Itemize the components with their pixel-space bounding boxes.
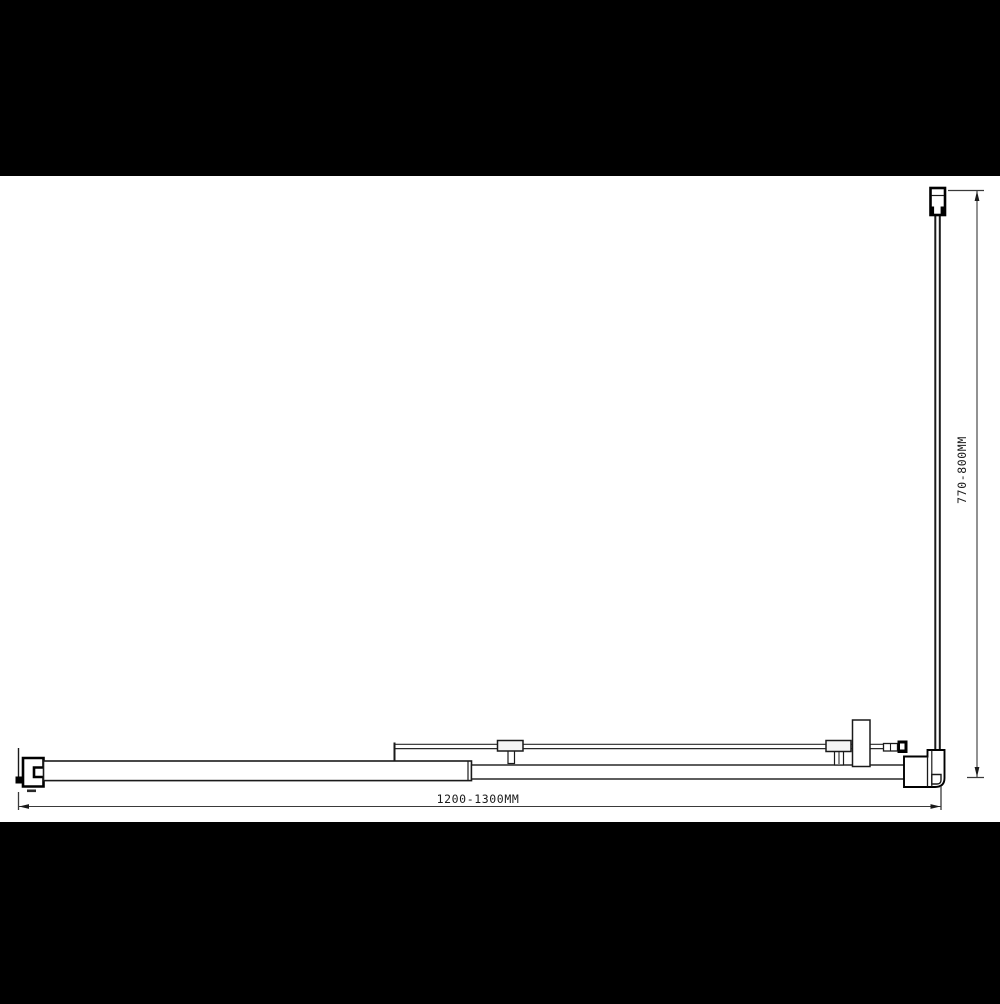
support-bracket [853,720,871,767]
clamp-head [826,741,851,752]
drawing-canvas [0,176,1000,822]
width-dimension-label: 1200-1300MM [437,792,520,806]
corner-connector-block [904,750,945,787]
corner-mount-slot [900,744,905,750]
height-dimension-label: 770-800MM [955,436,969,504]
clamp-stem [508,751,515,764]
glass-edge-line [934,214,936,753]
clamp-head [498,741,524,752]
bracket-foot [930,207,935,216]
corner-block-insert [932,775,941,785]
wall-anchor-foot [16,777,23,784]
fixed-panel-bar [44,761,472,781]
drawing-stage: 770-800MM [0,0,1000,1000]
glass-edge-line [939,214,941,753]
sliding-door-bar [472,765,908,779]
top-wall-bracket [930,188,946,216]
profile-mark [27,790,36,793]
technical-drawing: 770-800MM [0,0,1000,1000]
bracket-foot [941,207,946,216]
